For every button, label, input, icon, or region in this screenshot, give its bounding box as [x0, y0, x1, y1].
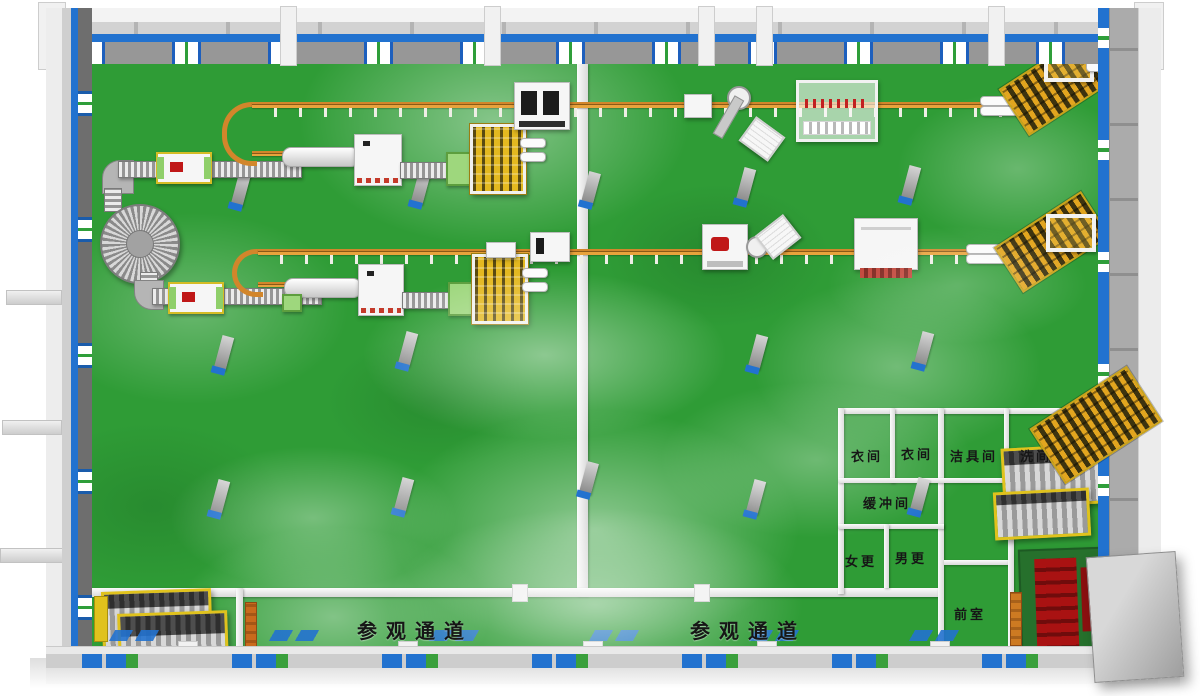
fork-arm	[522, 282, 548, 292]
red-cabinet	[1034, 558, 1079, 659]
room-label-cloakroom-1: 衣间	[842, 446, 892, 465]
air-conveyor-line1-drop	[252, 151, 286, 156]
room-label-men-changing: 男更	[888, 548, 934, 567]
small-station-line2	[486, 242, 516, 258]
machine-lid-line	[861, 227, 911, 230]
machine-end-cap	[169, 287, 176, 309]
rack-dark-slats	[104, 591, 208, 609]
room-label-buffer-room: 缓冲间	[850, 493, 924, 512]
wall-pilaster	[484, 6, 501, 66]
center-divider-wall	[577, 64, 588, 596]
cartoner-machine-line2	[854, 218, 918, 270]
west-wall-blue-band	[71, 8, 78, 658]
filler-machine-line1	[354, 134, 402, 186]
machine-base	[357, 178, 399, 183]
rack-dark-slats	[996, 491, 1086, 506]
south-wall-outer	[46, 668, 1158, 684]
caged-filling-machine	[796, 80, 878, 142]
wall-pilaster	[756, 6, 773, 66]
orange-panel	[1010, 592, 1022, 646]
cabinet-panel	[543, 91, 559, 115]
control-panel-line2	[530, 232, 570, 262]
corridor-floor-markings	[109, 630, 991, 641]
fork-arm	[520, 138, 546, 148]
labeler-machine-line1	[282, 147, 360, 167]
west-wall-windows	[78, 8, 92, 658]
transfer-unit-line2	[282, 294, 302, 312]
fork-arm	[522, 268, 548, 278]
wall-pilaster	[512, 584, 528, 602]
corridor-label-right: 参观通道	[658, 615, 838, 644]
room-label-anteroom: 前室	[940, 604, 1000, 623]
machine-slats	[803, 121, 871, 135]
fork-arm	[520, 152, 546, 162]
wall-pilaster	[694, 584, 710, 602]
exterior-beam	[0, 548, 64, 563]
cabinet-panel	[521, 91, 537, 115]
small-station-line1	[684, 94, 712, 118]
wrapping-machine-line2	[168, 282, 224, 314]
machine-red-door	[182, 292, 195, 302]
wall-pilaster	[988, 6, 1005, 66]
room-label-women-changing: 女更	[838, 551, 884, 570]
machine-base	[361, 308, 401, 313]
east-wall-blue-band	[1098, 8, 1109, 648]
machine-logo	[367, 271, 374, 276]
exterior-beam	[2, 420, 62, 435]
machine-red-unit	[711, 237, 729, 251]
elevator-frame-line2	[1046, 214, 1096, 252]
room-label-tools-room: 洁具间	[940, 446, 1008, 465]
machine-red-door	[170, 162, 183, 172]
cabinet-base	[519, 121, 565, 127]
conveyor-supports	[252, 108, 1008, 117]
machine-end-cap	[157, 157, 164, 179]
filler-machine-line2	[358, 264, 404, 316]
control-cabinet-line1	[514, 82, 570, 130]
south-wall-windows	[46, 654, 1158, 668]
machine-logo	[363, 141, 370, 146]
wall-pilaster	[280, 6, 297, 66]
yellow-step	[94, 596, 108, 642]
bottle-row	[805, 99, 869, 108]
capper-machine-line2	[702, 224, 748, 270]
factory-floor-plan-render: 参观通道 参观通道 衣间 衣间 洁具间 洗间 缓冲间 女更 男更 前室	[0, 0, 1200, 696]
machine-base	[707, 261, 743, 267]
exterior-beam	[6, 290, 62, 305]
pallet-cage-line1	[470, 124, 526, 194]
room-label-cloakroom-2: 衣间	[892, 444, 942, 463]
west-wall-band	[62, 8, 71, 658]
machine-end-cap	[216, 287, 223, 309]
filter-rack-lower	[993, 488, 1091, 541]
exterior-utility-box	[1086, 551, 1185, 683]
machine-slat-base	[860, 268, 912, 278]
complex-wall-h2	[838, 524, 944, 529]
panel-detail	[536, 238, 544, 254]
wrapping-machine-line1	[156, 152, 212, 184]
pallet-cage-line2	[472, 254, 528, 324]
corridor-label-left: 参观通道	[325, 615, 505, 644]
wall-pilaster	[698, 6, 715, 66]
east-wall-panels	[1109, 8, 1139, 648]
orange-door	[245, 602, 257, 650]
anteroom-wall-top	[944, 560, 1012, 565]
machine-end-cap	[204, 157, 211, 179]
